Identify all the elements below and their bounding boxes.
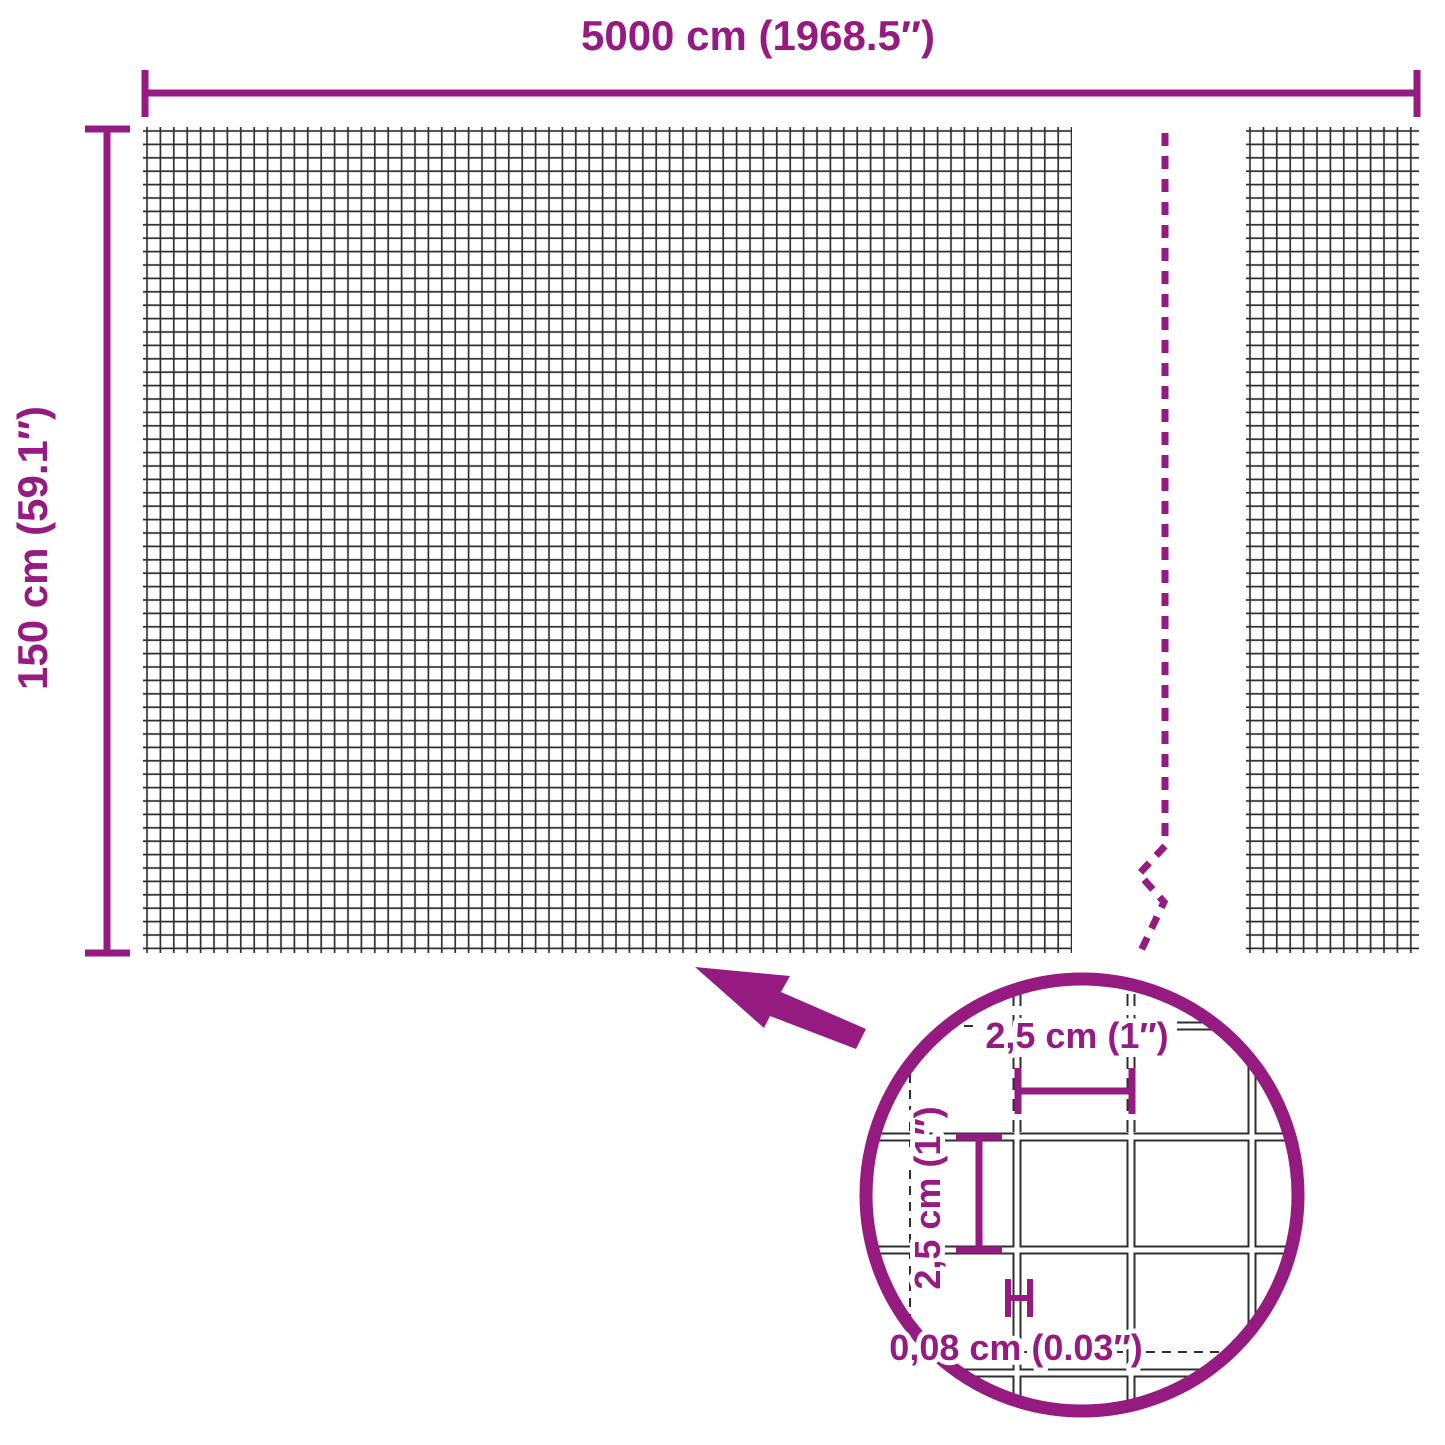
wire-thickness-label: 0,08 cm (0.03″) [889,1327,1142,1368]
product-dimension-diagram: 5000 cm (1968.5″) 150 cm (59.1″) 2,5 cm … [0,0,1445,1445]
width-dimension-line [145,70,1417,117]
diagram-canvas: 5000 cm (1968.5″) 150 cm (59.1″) 2,5 cm … [0,0,1445,1445]
mesh-panel-main [143,127,1072,953]
zoom-arrow [695,967,866,1049]
height-dimension-line [85,129,130,953]
cell-width-label: 2,5 cm (1″) [985,1015,1168,1056]
height-dimension-label: 150 cm (59.1″) [9,406,56,690]
cell-width-dimension-line [1018,1068,1132,1114]
cell-height-label: 2,5 cm (1″) [907,1106,948,1289]
cell-height-dimension-line [956,1137,1002,1250]
width-dimension-label: 5000 cm (1968.5″) [581,12,935,59]
mesh-panel-continuation [1246,127,1419,953]
break-line [1139,133,1165,953]
